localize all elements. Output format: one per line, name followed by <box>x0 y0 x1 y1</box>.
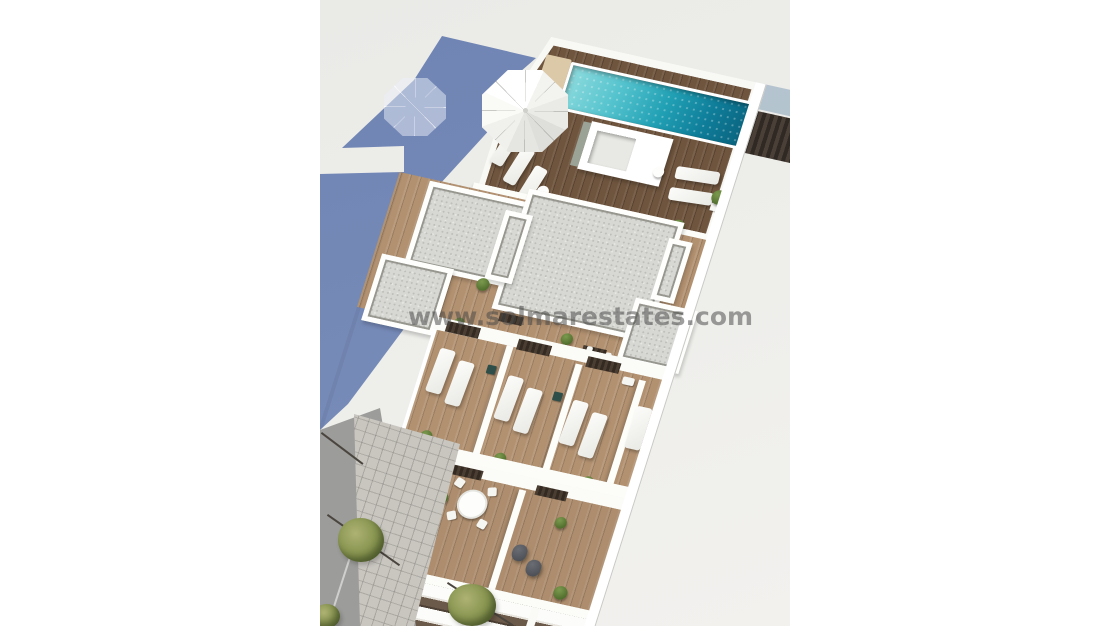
page: www.solmarestates.com <box>0 0 1110 626</box>
street-tree <box>338 518 384 562</box>
street-tree <box>448 584 496 626</box>
parasol-finial <box>523 108 528 113</box>
dining-chair <box>487 487 496 496</box>
dining-chair <box>446 510 456 520</box>
watermark-text: www.solmarestates.com <box>408 302 722 331</box>
render-photo: www.solmarestates.com <box>320 0 790 626</box>
